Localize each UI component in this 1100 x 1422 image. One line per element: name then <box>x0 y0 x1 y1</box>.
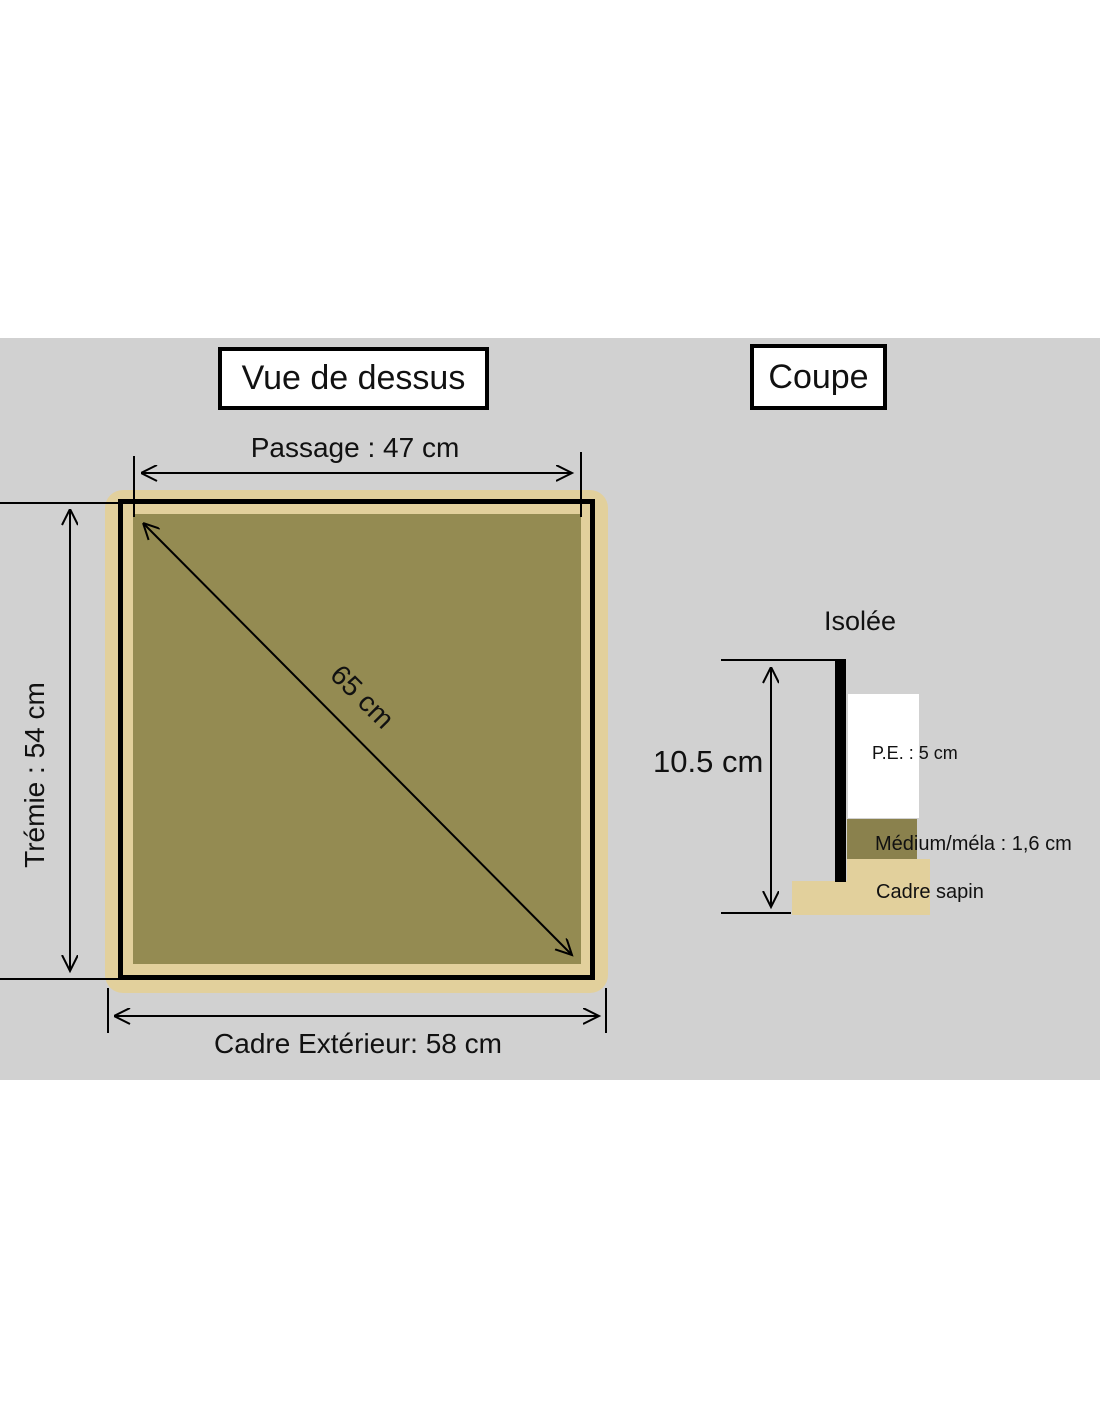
fir-frame-label: Cadre sapin <box>876 881 984 904</box>
section-trap-panel-bar <box>835 659 846 882</box>
diagram-page: Vue de dessus Coupe <box>0 0 1100 1422</box>
section-height-label: 10.5 cm <box>653 744 763 780</box>
fir-frame-step <box>792 881 847 915</box>
pe-foam-label: P.E. : 5 cm <box>872 743 958 764</box>
section-title-box: Coupe <box>750 344 887 410</box>
top-view-title: Vue de dessus <box>242 359 466 398</box>
outer-frame-dimension-label: Cadre Extérieur: 58 cm <box>108 1028 608 1060</box>
inner-panel <box>133 514 581 964</box>
insulated-label: Isolée <box>810 606 910 637</box>
medium-melamine-label: Médium/méla : 1,6 cm <box>875 833 1072 856</box>
section-title: Coupe <box>768 358 868 397</box>
top-view-title-box: Vue de dessus <box>218 347 489 410</box>
passage-dimension-label: Passage : 47 cm <box>135 432 575 464</box>
tremie-dimension-label: Trémie : 54 cm <box>19 682 51 868</box>
